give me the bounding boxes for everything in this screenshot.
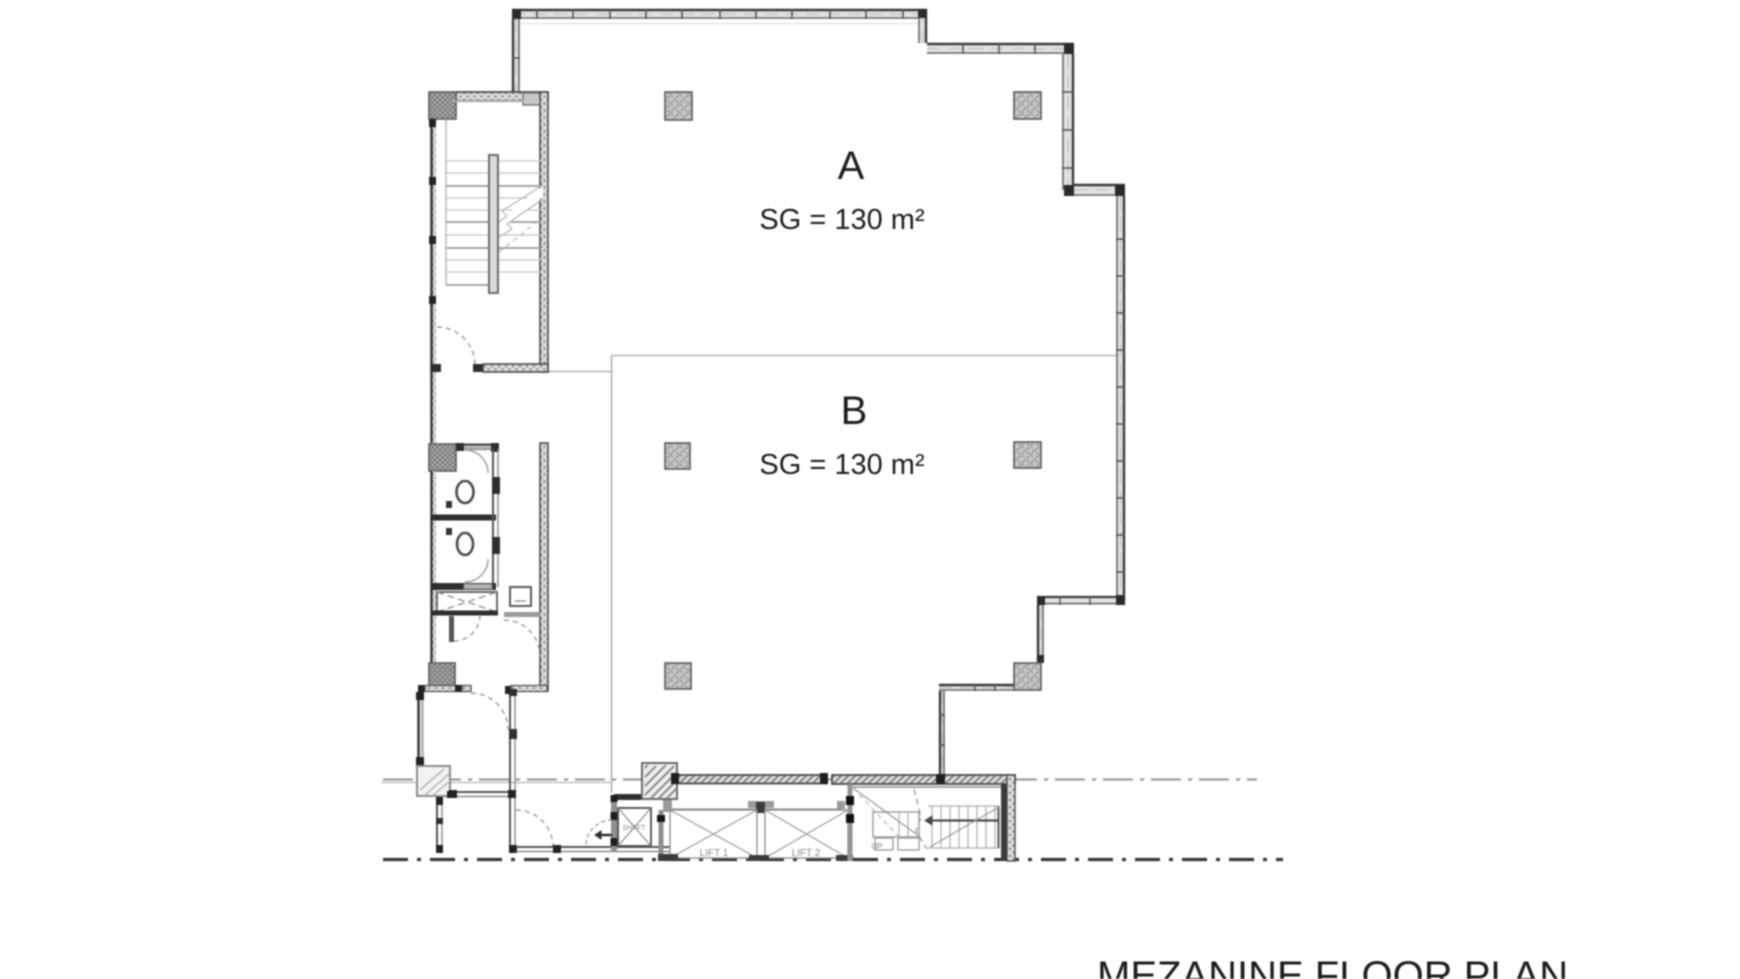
svg-text:B: B — [841, 389, 868, 433]
svg-text:SG = 130 m²: SG = 130 m² — [759, 204, 925, 236]
svg-text:UP: UP — [871, 842, 882, 851]
svg-text:LIFT 2: LIFT 2 — [792, 848, 821, 859]
svg-text:MEZANINE FLOOR PLAN: MEZANINE FLOOR PLAN — [1097, 954, 1568, 979]
svg-text:SG = 130 m²: SG = 130 m² — [759, 449, 925, 481]
svg-text:LIFT 1: LIFT 1 — [700, 848, 729, 859]
svg-text:SHAFT: SHAFT — [623, 825, 647, 832]
svg-text:A: A — [838, 144, 865, 188]
